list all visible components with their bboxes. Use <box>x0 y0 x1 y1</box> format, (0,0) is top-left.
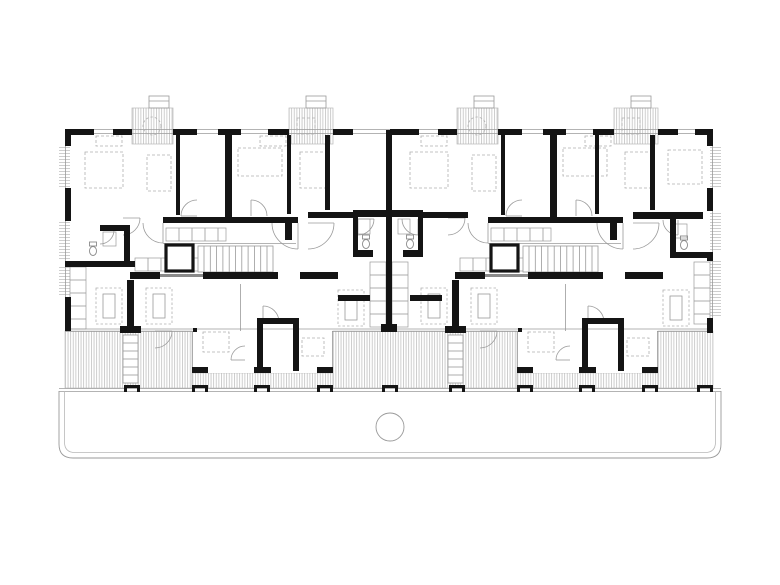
partition-wall <box>160 274 203 277</box>
wall-segment <box>203 272 278 279</box>
window-hatch <box>710 146 721 187</box>
wall-segment <box>65 297 71 331</box>
wall-segment <box>423 212 468 218</box>
balcony-cap <box>631 96 651 108</box>
footing-mark-tick <box>137 385 140 392</box>
window-hatch <box>59 266 70 296</box>
entrance-circle <box>376 413 404 441</box>
kitchen-counter <box>166 228 226 241</box>
wall-segment <box>707 129 713 146</box>
balcony-hatch <box>457 108 498 144</box>
wall-segment <box>438 129 457 135</box>
wall-segment <box>130 272 160 279</box>
wall-segment <box>268 129 289 135</box>
wall-segment <box>65 129 71 146</box>
door-arc <box>308 223 334 249</box>
wall-segment <box>390 129 419 135</box>
balcony-cap <box>149 96 169 108</box>
door-arc <box>506 200 522 216</box>
toilet-tank <box>407 235 414 239</box>
door-arc <box>448 218 465 235</box>
wall-segment <box>595 135 599 214</box>
wall-segment <box>498 129 522 135</box>
wall-segment <box>127 280 134 331</box>
door-arc <box>358 219 374 235</box>
wall-segment <box>386 130 392 326</box>
footing-mark-tick <box>517 385 520 392</box>
wall-segment <box>100 225 128 231</box>
ground-outline-inner <box>65 391 716 453</box>
door-arc <box>181 200 197 216</box>
elevator <box>166 245 193 271</box>
partition-wall <box>485 274 528 277</box>
dining-chairs <box>146 288 172 324</box>
footing-mark-tick <box>530 385 533 392</box>
wall-segment <box>285 222 292 240</box>
wall-segment <box>518 328 522 332</box>
wall-segment <box>582 318 623 324</box>
wall-segment <box>582 318 588 371</box>
wall-segment <box>176 135 180 215</box>
wall-segment <box>353 250 373 257</box>
footing-mark-tick <box>710 385 713 392</box>
footing-mark-tick <box>317 385 320 392</box>
furniture-dashed <box>85 152 123 188</box>
dining-table <box>103 294 115 318</box>
wall-segment <box>381 324 397 332</box>
footing-mark-tick <box>267 385 270 392</box>
wall-segment <box>550 133 557 222</box>
wall-segment <box>670 212 676 258</box>
floor-plan-page <box>0 0 780 585</box>
balcony-hatch <box>132 108 173 144</box>
dining-chairs <box>96 288 122 324</box>
window-hatch <box>59 221 70 261</box>
wall-segment <box>257 318 298 324</box>
footing-mark-tick <box>192 385 195 392</box>
footing-mark-tick <box>655 385 658 392</box>
wall-segment <box>257 318 263 371</box>
wall-segment <box>308 212 353 218</box>
wall-segment <box>618 318 624 371</box>
toilet-tank <box>90 242 97 246</box>
wall-segment <box>517 367 533 373</box>
wall-segment <box>113 129 132 135</box>
furniture-dashed <box>410 152 448 188</box>
wall-segment <box>642 367 658 373</box>
furniture-dashed <box>238 148 282 176</box>
toilet-tank <box>363 235 370 239</box>
dining-table <box>153 294 165 318</box>
footing-mark-tick <box>330 385 333 392</box>
footing-mark-tick <box>592 385 595 392</box>
door-arc <box>468 223 488 243</box>
wall-segment <box>488 217 623 223</box>
wall-segment <box>65 261 135 267</box>
wall-segment <box>353 210 423 217</box>
footing-mark-tick <box>254 385 257 392</box>
door-arc <box>576 200 592 216</box>
wall-segment <box>300 272 338 279</box>
floor-plan-drawing <box>0 0 780 585</box>
furniture-dashed <box>96 136 122 146</box>
wall-segment <box>317 367 333 373</box>
furniture-dashed <box>472 155 496 191</box>
kitchen-counter <box>103 232 116 246</box>
footing-mark-tick <box>124 385 127 392</box>
kitchen-counter <box>392 262 408 327</box>
wall-segment <box>528 272 603 279</box>
wall-segment <box>353 217 358 253</box>
toilet-icon <box>363 240 370 249</box>
toilet-icon <box>90 247 97 256</box>
wall-segment <box>658 129 678 135</box>
wall-segment <box>633 212 703 219</box>
door-arc <box>251 200 267 216</box>
window-hatch <box>59 146 70 187</box>
wall-segment <box>410 295 442 301</box>
footing-mark-tick <box>462 385 465 392</box>
wall-segment <box>254 367 271 373</box>
footing-mark-tick <box>205 385 208 392</box>
terrace-hatch <box>333 331 517 388</box>
wall-segment <box>65 188 71 221</box>
kitchen-counter <box>70 267 86 329</box>
ground-outline-outer <box>59 391 721 458</box>
footing-mark-tick <box>579 385 582 392</box>
toilet-icon <box>407 240 414 249</box>
wall-segment <box>593 129 614 135</box>
wall-segment <box>124 225 130 267</box>
footing-mark-tick <box>697 385 700 392</box>
footing-mark-tick <box>382 385 385 392</box>
wall-segment <box>455 272 485 279</box>
furniture-dashed <box>300 152 328 188</box>
wall-segment <box>501 135 505 215</box>
kitchen-counter <box>694 262 710 324</box>
toilet-icon <box>681 241 688 250</box>
furniture-dashed <box>563 148 607 176</box>
furniture-dashed <box>421 136 447 146</box>
wall-segment <box>333 129 353 135</box>
wall-segment <box>707 318 713 333</box>
wall-segment <box>193 328 197 332</box>
footing-mark-tick <box>642 385 645 392</box>
dining-table <box>478 294 490 318</box>
dining-chairs <box>421 288 447 324</box>
window-hatch <box>710 211 721 251</box>
balcony-cap <box>306 96 326 108</box>
footing-mark-tick <box>395 385 398 392</box>
wall-segment <box>192 367 208 373</box>
wall-segment <box>293 318 299 371</box>
wall-segment <box>650 135 655 210</box>
door-arc <box>633 223 659 249</box>
kitchen-counter <box>491 228 551 241</box>
wall-segment <box>707 188 713 211</box>
dining-chairs <box>471 288 497 324</box>
wall-segment <box>625 272 663 279</box>
door-arc <box>143 223 163 243</box>
kitchen-counter <box>370 262 386 327</box>
furniture-dashed <box>147 155 171 191</box>
wall-segment <box>325 135 330 210</box>
wall-segment <box>287 135 291 214</box>
wall-segment <box>579 367 596 373</box>
dining-table <box>670 296 682 320</box>
wall-segment <box>173 129 197 135</box>
window-hatch <box>710 261 721 317</box>
terrace-hatch <box>658 331 713 388</box>
wall-segment <box>163 217 298 223</box>
balcony-cap <box>474 96 494 108</box>
wall-segment <box>225 133 232 222</box>
wall-segment <box>120 326 141 333</box>
furniture-dashed <box>625 152 653 188</box>
wall-segment <box>418 217 423 253</box>
wall-segment <box>610 222 617 240</box>
wall-segment <box>338 295 370 301</box>
furniture-dashed <box>260 136 286 146</box>
furniture-dashed <box>668 150 702 184</box>
dining-chairs <box>663 290 689 326</box>
wall-segment <box>445 326 466 333</box>
footing-mark-tick <box>449 385 452 392</box>
wall-segment <box>403 250 423 257</box>
elevator <box>491 245 518 271</box>
wall-segment <box>670 252 710 258</box>
wall-segment <box>452 280 459 331</box>
